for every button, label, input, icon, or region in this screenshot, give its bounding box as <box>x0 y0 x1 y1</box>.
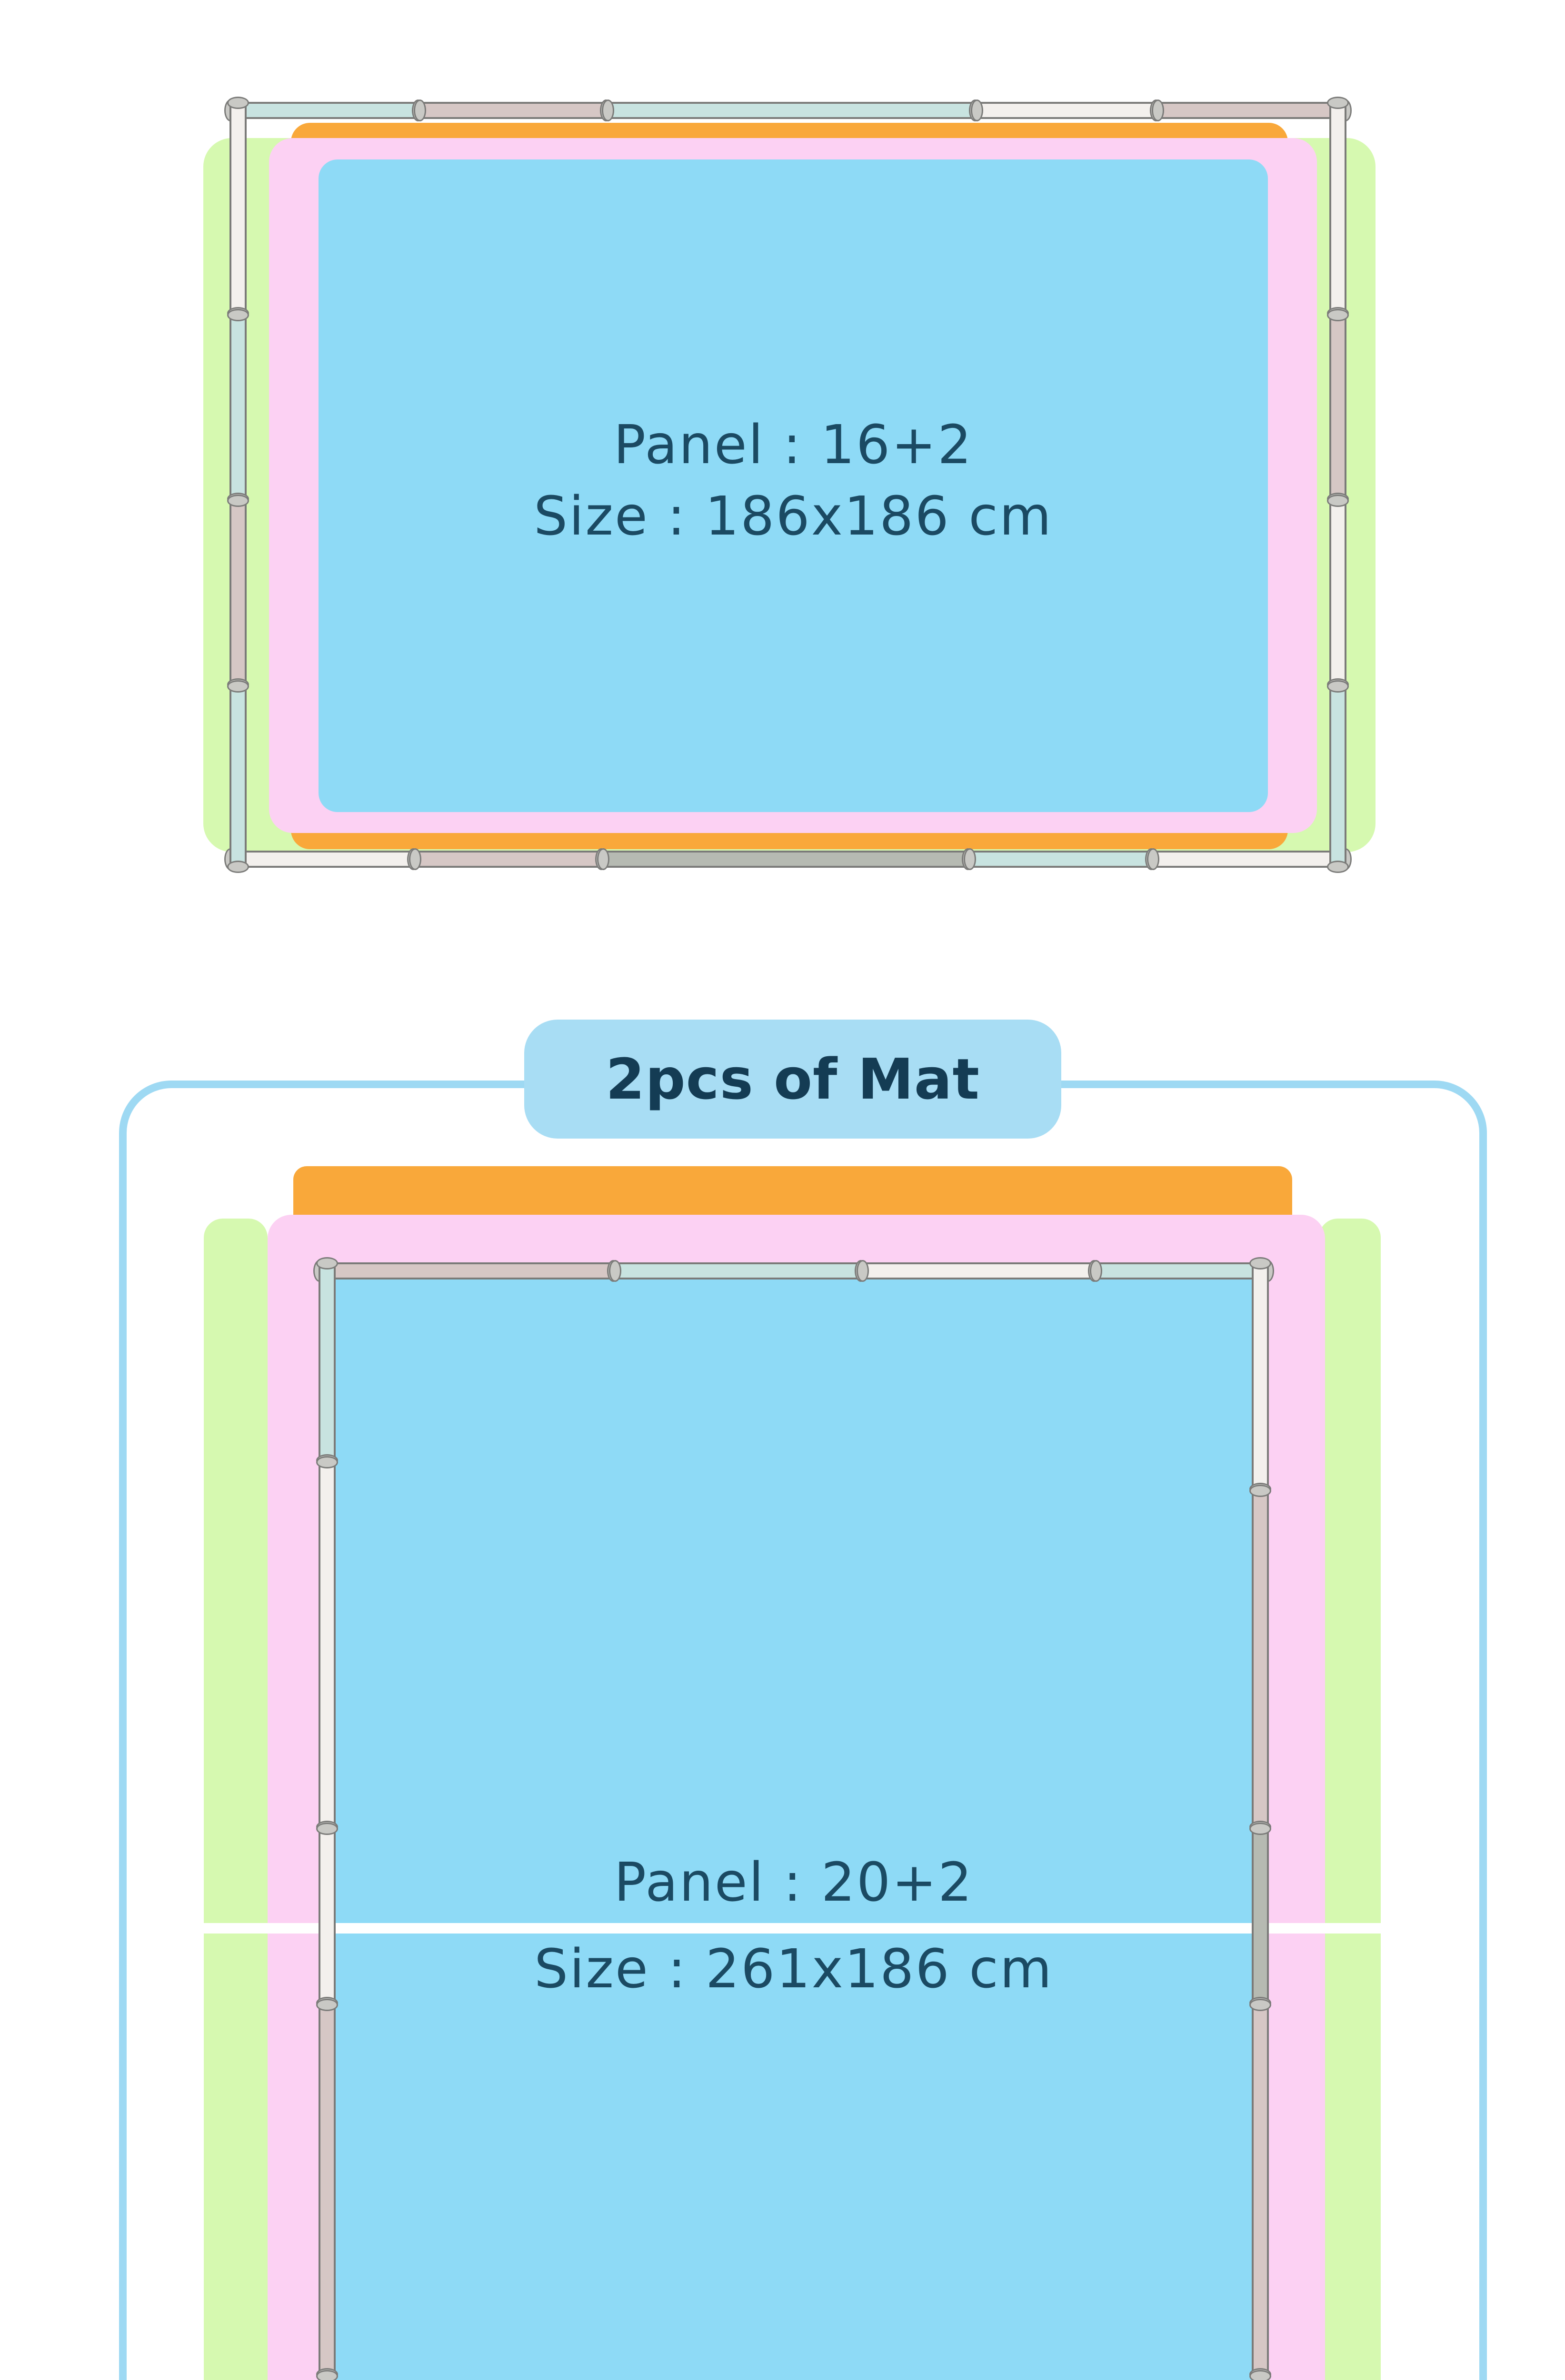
rail-tube-segment <box>319 1262 614 1279</box>
tube-joint-cap <box>409 848 421 870</box>
rail-tube-segment <box>614 1262 862 1279</box>
mat-count-badge: 2pcs of Mat <box>524 1020 1061 1139</box>
tube-joint-cap <box>227 680 249 693</box>
tube-joint-cap <box>316 1823 338 1835</box>
rail-tube-segment <box>319 2375 336 2380</box>
rail-tube-segment <box>1252 2004 1269 2375</box>
rail-tube-segment <box>976 102 1157 119</box>
tube-joint-cap <box>1090 1260 1102 1282</box>
tube-joint-cap <box>316 2370 338 2380</box>
tube-joint-cap <box>227 309 249 321</box>
tube-joint-cap <box>227 97 249 109</box>
tube-joint-cap <box>1249 1257 1271 1269</box>
tube-joint-cap <box>971 99 983 121</box>
rail-tube-segment <box>1252 2375 1269 2380</box>
rail-tube-segment <box>1152 851 1346 868</box>
rail-tube-segment <box>229 314 247 500</box>
rail-tube-segment <box>1252 1262 1269 1490</box>
tube-joint-cap <box>597 848 609 870</box>
rail-tube-segment <box>319 1828 336 2004</box>
tube-joint-cap <box>964 848 976 870</box>
tube-joint-cap <box>609 1260 621 1282</box>
rail-tube-segment <box>607 102 976 119</box>
tube-joint-cap <box>227 495 249 507</box>
rail-tube-segment <box>419 102 607 119</box>
playmat-infographic: Panel : 16+2 Size : 186x186 cm Panel : 2… <box>0 0 1565 2380</box>
rail-tube-segment <box>229 500 247 685</box>
rail-tube-segment <box>1157 102 1346 119</box>
rail-tube-segment <box>229 851 414 868</box>
tube-joint-cap <box>602 99 614 121</box>
tube-joint-cap <box>316 1456 338 1468</box>
rail-tube-segment <box>1252 1490 1269 1828</box>
tube-joint-cap <box>227 861 249 873</box>
tube-joint-cap <box>1152 99 1164 121</box>
tube-joint-cap <box>1327 680 1349 693</box>
rail-tube-segment <box>1329 685 1346 868</box>
tube-joint-cap <box>414 99 426 121</box>
rail-tube-segment <box>602 851 969 868</box>
tube-joint-cap <box>316 1999 338 2011</box>
rail-tube-segment <box>319 2004 336 2375</box>
tube-joint-cap <box>1327 97 1349 109</box>
tube-joint-cap <box>857 1260 869 1282</box>
tube-joint-cap <box>1327 495 1349 507</box>
tube-joint-cap <box>1249 1485 1271 1497</box>
rail-tube-segment <box>1095 1262 1269 1279</box>
rail-tube-segment <box>1329 314 1346 500</box>
mat-count-badge-label: 2pcs of Mat <box>606 1046 980 1112</box>
rails-layer <box>0 0 1565 2380</box>
rail-tube-segment <box>229 685 247 868</box>
tube-joint-cap <box>316 1257 338 1269</box>
rail-tube-segment <box>1252 1828 1269 2004</box>
rail-tube-segment <box>229 102 247 314</box>
tube-joint-cap <box>1147 848 1159 870</box>
tube-joint-cap <box>1249 1999 1271 2011</box>
tube-joint-cap <box>1327 861 1349 873</box>
rail-tube-segment <box>1329 500 1346 685</box>
rail-tube-segment <box>862 1262 1095 1279</box>
rail-tube-segment <box>319 1262 336 1461</box>
rail-tube-segment <box>414 851 602 868</box>
rail-tube-segment <box>969 851 1152 868</box>
rail-tube-segment <box>229 102 419 119</box>
tube-joint-cap <box>1327 309 1349 321</box>
tube-joint-cap <box>1249 2370 1271 2380</box>
tube-joint-cap <box>1249 1823 1271 1835</box>
rail-tube-segment <box>1329 102 1346 314</box>
rail-tube-segment <box>319 1461 336 1828</box>
